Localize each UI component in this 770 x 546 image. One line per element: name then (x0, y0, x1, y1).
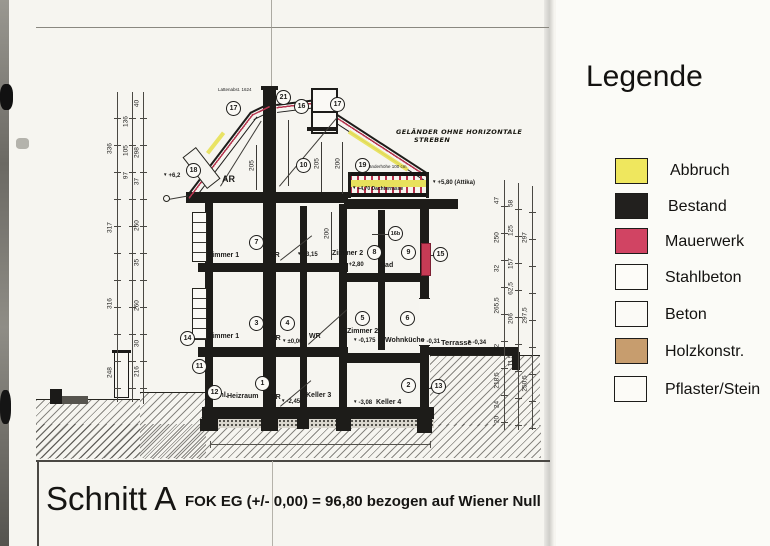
dim-value: 260 (133, 211, 142, 241)
level-value: +5,80 (Attika) (437, 180, 475, 186)
titleblock-left-border (37, 460, 39, 546)
handwritten-line: STREBEN (414, 136, 522, 144)
frame-top (36, 27, 549, 28)
wall-chimney (263, 88, 276, 410)
marker-8: 8 (367, 245, 382, 260)
roof-post (288, 120, 289, 186)
dim-value: 297,5 (521, 301, 530, 331)
level-value: +2,80 (348, 262, 363, 268)
marker-15: 15 (433, 247, 448, 262)
level-mark: ▼+5,80 (Attika) (432, 179, 475, 186)
dim-value: 32 (493, 333, 502, 363)
marker-1: 1 (255, 376, 270, 391)
marker-label: 9 (407, 249, 411, 256)
handwritten-railing-note: GELÄNDER OHNE HORIZONTALE STREBEN (396, 128, 522, 144)
dim-value: 316 (106, 289, 115, 319)
marker-12: 12 (207, 385, 222, 400)
marker-label: 19 (359, 162, 367, 169)
fold-top (271, 0, 272, 88)
marker-16: 16 (294, 99, 309, 114)
level-triangle-icon: ▼ (352, 185, 356, 190)
dim-value: 30 (133, 329, 142, 359)
footing (336, 419, 351, 431)
scan-smudge (16, 138, 29, 149)
room-label-heizraum: Heizraum (227, 393, 259, 400)
marker-label: 3 (255, 320, 259, 327)
garden-wall (50, 389, 62, 404)
marker-10: 10 (296, 158, 311, 173)
room-label-keller3: Keller 3 (306, 392, 331, 399)
level-triangle-icon: ▼ (421, 338, 425, 343)
level-value: +3,15 (302, 252, 317, 258)
marker-17-right: 17 (330, 97, 345, 112)
marker-21: 21 (276, 90, 291, 105)
marker-2: 2 (401, 378, 416, 393)
level-triangle-icon: ▼ (353, 399, 357, 404)
level-value: +6,2 (168, 173, 180, 179)
legend-swatch-abbruch (615, 158, 648, 184)
room-label-zimmer1-eg: Zimmer 1 (208, 333, 239, 340)
dim-value: 248 (106, 358, 115, 388)
marker-label: 17 (230, 105, 238, 112)
level-mark: ▼-0,31 (421, 338, 440, 345)
room-label-zimmer2-og: Zimmer 2 (332, 250, 363, 257)
marker-14: 14 (180, 331, 195, 346)
dim-value: 37 (133, 167, 142, 197)
slab-basement-floor (202, 407, 434, 419)
railing-post (426, 172, 429, 198)
room-label-zimmer1-og: Zimmer 1 (208, 252, 239, 259)
level-mark: ▼-3,08 (353, 399, 372, 406)
wall-bad-left (378, 210, 385, 350)
dim-value: 317 (106, 213, 115, 243)
legend-swatch-holzkonstr (615, 338, 648, 364)
scanned-section-drawing: 336 317 316 248 136 105 97 40 298 37 260… (0, 0, 770, 546)
legend-swatch-bestand (615, 193, 648, 219)
skylight-base (307, 127, 338, 131)
level-value: +4,70 Dachterrasse (357, 186, 403, 192)
marker-label: 4 (286, 320, 290, 327)
marker-4: 4 (280, 316, 295, 331)
legend-label-abbruch: Abbruch (670, 162, 730, 180)
room-label-vr-og: VR (270, 252, 280, 259)
marker-label: 1 (261, 380, 265, 387)
marker-9: 9 (401, 245, 416, 260)
footing (200, 419, 218, 431)
marker-label: 5 (361, 315, 365, 322)
frame-bottom (36, 460, 550, 462)
level-triangle-icon: ▼ (353, 337, 357, 342)
dim-value: 250,5 (521, 369, 530, 399)
railing-bottom-rail (350, 193, 428, 197)
dim-value: 40 (133, 89, 142, 119)
room-label-zimmer2-eg: Zimmer 2 (347, 328, 378, 335)
legend-label-bestand: Bestand (668, 198, 727, 216)
level-triangle-icon: ▼ (282, 338, 286, 343)
marker-18: 18 (186, 163, 201, 178)
level-mark: ▼-0,175 (353, 337, 375, 344)
dim-value: 205 (248, 151, 257, 181)
marker-label: 12 (211, 389, 219, 396)
marker-label: 18 (190, 167, 198, 174)
scan-blob (0, 84, 13, 110)
footing (417, 419, 432, 433)
dim-value: 20 (493, 405, 502, 435)
level-mark: ▼±0,00 (282, 338, 302, 345)
dim-value: 200 (323, 219, 332, 249)
room-label-ar: AR (222, 174, 235, 184)
dim-value: 97 (122, 161, 131, 191)
foundation-bed (202, 419, 434, 428)
ground-bottom (36, 424, 541, 458)
legend-swatch-beton (615, 301, 648, 327)
marker-label: 13 (435, 383, 443, 390)
legend-label-beton: Beton (665, 306, 707, 324)
level-mark: ▼+3,15 (297, 251, 318, 258)
gutter (163, 195, 170, 202)
chimney-cap (261, 86, 278, 90)
dim-tick (210, 441, 211, 448)
level-mark: ▼+2,80 (343, 261, 364, 268)
level-value: -2,45 (286, 399, 300, 405)
marker-6: 6 (400, 311, 415, 326)
level-triangle-icon: ▼ (281, 398, 285, 403)
handwritten-line: GELÄNDER OHNE HORIZONTALE (396, 128, 522, 136)
legend-swatch-mauerwerk (615, 228, 648, 254)
marker-label: 8 (373, 249, 377, 256)
slab-dachterrasse (344, 199, 458, 209)
dim-value: 260 (133, 291, 142, 321)
dim-chain-left-1 (114, 92, 121, 402)
level-triangle-icon: ▼ (432, 179, 436, 184)
level-value: -0,31 (426, 339, 440, 345)
legend-swatch-stahlbeton (615, 264, 648, 290)
railing-post (348, 172, 351, 198)
marker-16b: 16b (388, 226, 403, 241)
marker-13: 13 (431, 379, 446, 394)
dim-value: 297 (521, 223, 530, 253)
level-value: -0,175 (358, 338, 375, 344)
mauerwerk-element (421, 243, 431, 276)
scan-edge-strip (0, 0, 9, 546)
marker-11: 11 (192, 359, 207, 374)
level-value: ±0,00 (287, 339, 302, 345)
dim-value: 298 (133, 138, 142, 168)
marker-label: 6 (406, 315, 410, 322)
marker-label: 21 (280, 94, 288, 101)
level-triangle-icon: ▼ (297, 251, 301, 256)
level-triangle-icon: ▼ (343, 261, 347, 266)
level-mark: ▼+6,2 (163, 172, 180, 179)
level-value: -3,08 (358, 400, 372, 406)
garden-wall-cap (62, 396, 88, 404)
level-mark: ▼+4,70 Dachterrasse (352, 185, 403, 192)
dim-value: 206 (507, 304, 516, 334)
level-mark: ▼-0,34 (467, 339, 486, 346)
page-fold-right (544, 0, 556, 546)
marker-label: 10 (300, 162, 308, 169)
dim-value: 125 (507, 216, 516, 246)
dim-value: 32 (493, 254, 502, 284)
room-label-vr-kg: VR (271, 394, 281, 401)
legend-label-stahlbeton: Stahlbeton (665, 269, 742, 287)
wall-vr-wr (300, 206, 307, 410)
dim-value: 216 (133, 357, 142, 387)
marker-3: 3 (249, 316, 264, 331)
marker-label: 15 (437, 251, 445, 258)
facade-window-eg (192, 288, 207, 340)
legend-title: Legende (586, 60, 703, 94)
dim-value: 336 (106, 134, 115, 164)
dim-line-under-building (210, 444, 430, 445)
marker-17-left: 17 (226, 101, 241, 116)
section-title: Schnitt A (46, 480, 176, 518)
level-triangle-icon: ▼ (467, 339, 471, 344)
dim-value: 265,5 (493, 291, 502, 321)
room-label-wr: WR (309, 333, 321, 340)
marker-label: 7 (255, 239, 259, 246)
marker-7: 7 (249, 235, 264, 250)
legend-label-pflaster: Pflaster/Stein (665, 381, 760, 399)
legend-swatch-pflaster (614, 376, 647, 402)
dim-value: 62,5 (507, 274, 516, 304)
dim-tick (430, 441, 431, 448)
dim-chain-right-3 (529, 186, 536, 430)
roof-batten-note: Lattenabst. 1624 (218, 87, 252, 92)
legend-label-holzkonstr: Holzkonstr. (665, 343, 744, 361)
datum-note: FOK EG (+/- 0,00) = 96,80 bezogen auf Wi… (185, 493, 541, 510)
room-label-vr-eg: VR (271, 335, 281, 342)
marker-label: 16b (391, 231, 400, 237)
marker-5: 5 (355, 311, 370, 326)
facade-window-og (192, 212, 207, 262)
marker-19: 19 (355, 158, 370, 173)
room-label-keller4: Keller 4 (376, 399, 401, 406)
dim-value: 205 (313, 149, 322, 179)
room-label-bad: Bad (380, 262, 393, 269)
dim-value: 136 (122, 107, 131, 137)
dim-value: 250 (493, 223, 502, 253)
slab-eg-right (339, 353, 429, 363)
marker-label: 16 (298, 103, 306, 110)
level-value: -0,34 (472, 340, 486, 346)
marker-label: 2 (407, 382, 411, 389)
dim-value: 35 (133, 248, 142, 278)
footing (261, 419, 278, 431)
level-mark: ▼-2,45 (281, 398, 300, 405)
eave-left (168, 196, 188, 201)
level-triangle-icon: ▼ (163, 172, 167, 177)
marker-label: 14 (184, 335, 192, 342)
room-label-wohnkueche: Wohnküche (385, 337, 425, 344)
marker-label: 17 (334, 101, 342, 108)
dim-value: 58 (507, 189, 516, 219)
footing (297, 419, 309, 429)
dim-value: 200 (334, 149, 343, 179)
legend-label-mauerwerk: Mauerwerk (665, 233, 744, 251)
marker-label: 11 (196, 363, 203, 370)
scan-blob (0, 390, 11, 424)
dim-value: 11,5 (507, 346, 516, 376)
dim-value: 47 (493, 186, 502, 216)
